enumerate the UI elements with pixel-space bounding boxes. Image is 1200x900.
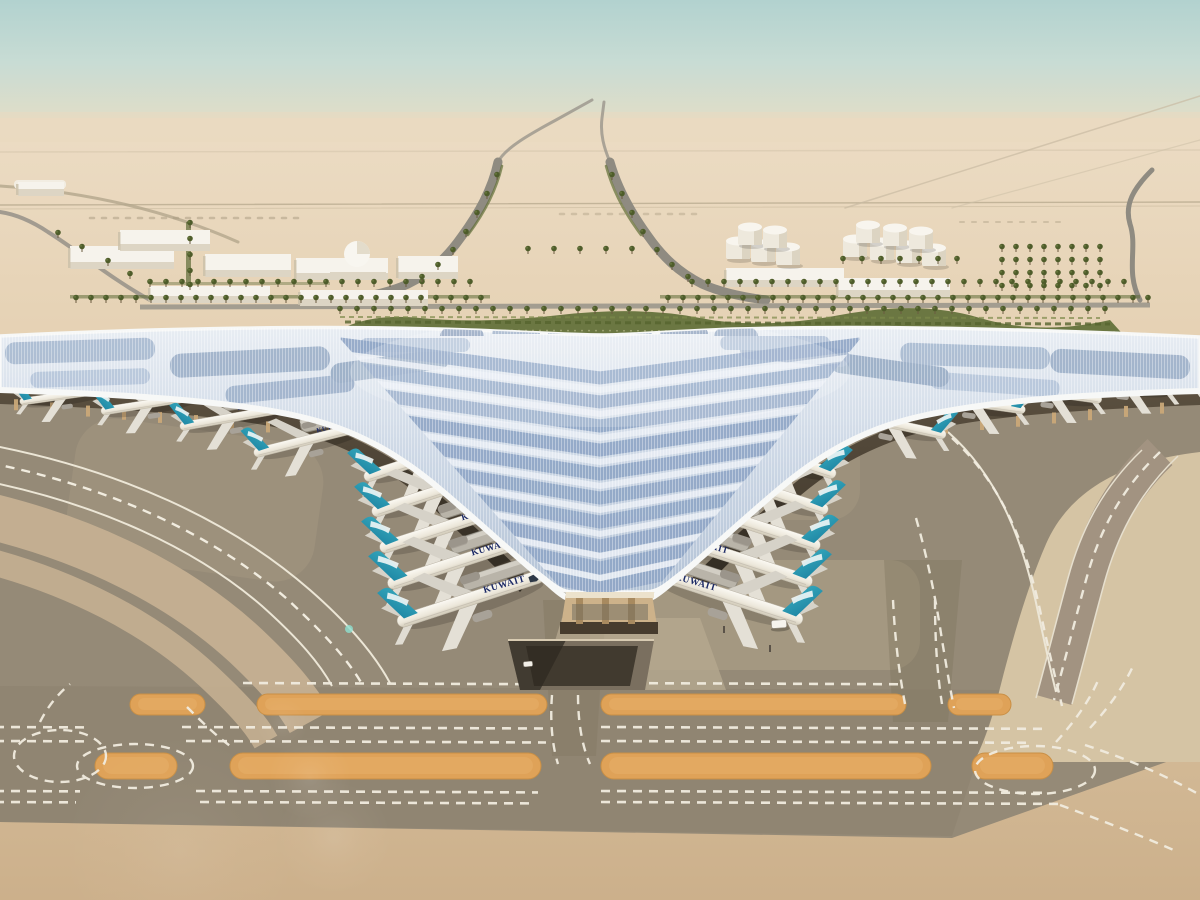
- building-roof: [300, 290, 428, 299]
- facade-column: [86, 406, 90, 417]
- building-roof: [205, 254, 291, 270]
- dashed-centerline: [182, 727, 546, 729]
- lens-flare-dot: [345, 625, 353, 633]
- facade-column: [1088, 409, 1092, 420]
- building-face: [726, 280, 844, 287]
- orange-strip-highlight: [265, 698, 539, 710]
- orange-strip-highlight: [609, 698, 898, 710]
- building-roof: [726, 268, 844, 280]
- building-face: [205, 270, 291, 277]
- facade-column: [14, 399, 18, 410]
- building-shade: [118, 232, 121, 250]
- cart-body: [523, 661, 532, 667]
- orange-strip-highlight: [609, 757, 923, 774]
- horizon-haze: [0, 112, 1200, 142]
- building-face: [300, 299, 428, 306]
- storage-tank: [738, 223, 765, 250]
- building-face: [70, 262, 174, 269]
- apron-pole: [769, 645, 771, 652]
- storage-tank: [909, 227, 936, 254]
- building-face: [120, 244, 210, 251]
- orange-strip-highlight: [956, 698, 1003, 710]
- scene-canvas: KUWAITKUWAITKUWAITKUWAITKUWAITKUWAITKUWA…: [0, 0, 1200, 900]
- building-face: [398, 272, 458, 279]
- building-shade: [203, 256, 206, 276]
- building-shade: [16, 184, 19, 195]
- facade-column: [1124, 406, 1128, 417]
- facade-column: [1052, 412, 1056, 423]
- building-roof: [398, 256, 458, 272]
- building-shade: [68, 248, 71, 268]
- building-roof: [150, 286, 270, 296]
- building-roof: [18, 182, 64, 189]
- storage-tank: [856, 221, 883, 248]
- airport-aerial-rendering: KUWAITKUWAITKUWAITKUWAITKUWAITKUWAITKUWA…: [0, 0, 1200, 900]
- van-body: [771, 619, 787, 628]
- building-shade: [396, 258, 399, 278]
- orange-strip-highlight: [980, 757, 1045, 774]
- building-shade: [294, 260, 297, 279]
- apron-pole: [723, 626, 725, 633]
- storage-tank: [883, 224, 910, 251]
- terminal-entrance: [560, 592, 658, 634]
- service-cart: [523, 661, 532, 667]
- storage-tank: [763, 226, 790, 253]
- dashed-centerline: [186, 741, 546, 743]
- facade-column: [1160, 403, 1164, 414]
- building-roof: [120, 230, 210, 244]
- building-face: [18, 189, 64, 196]
